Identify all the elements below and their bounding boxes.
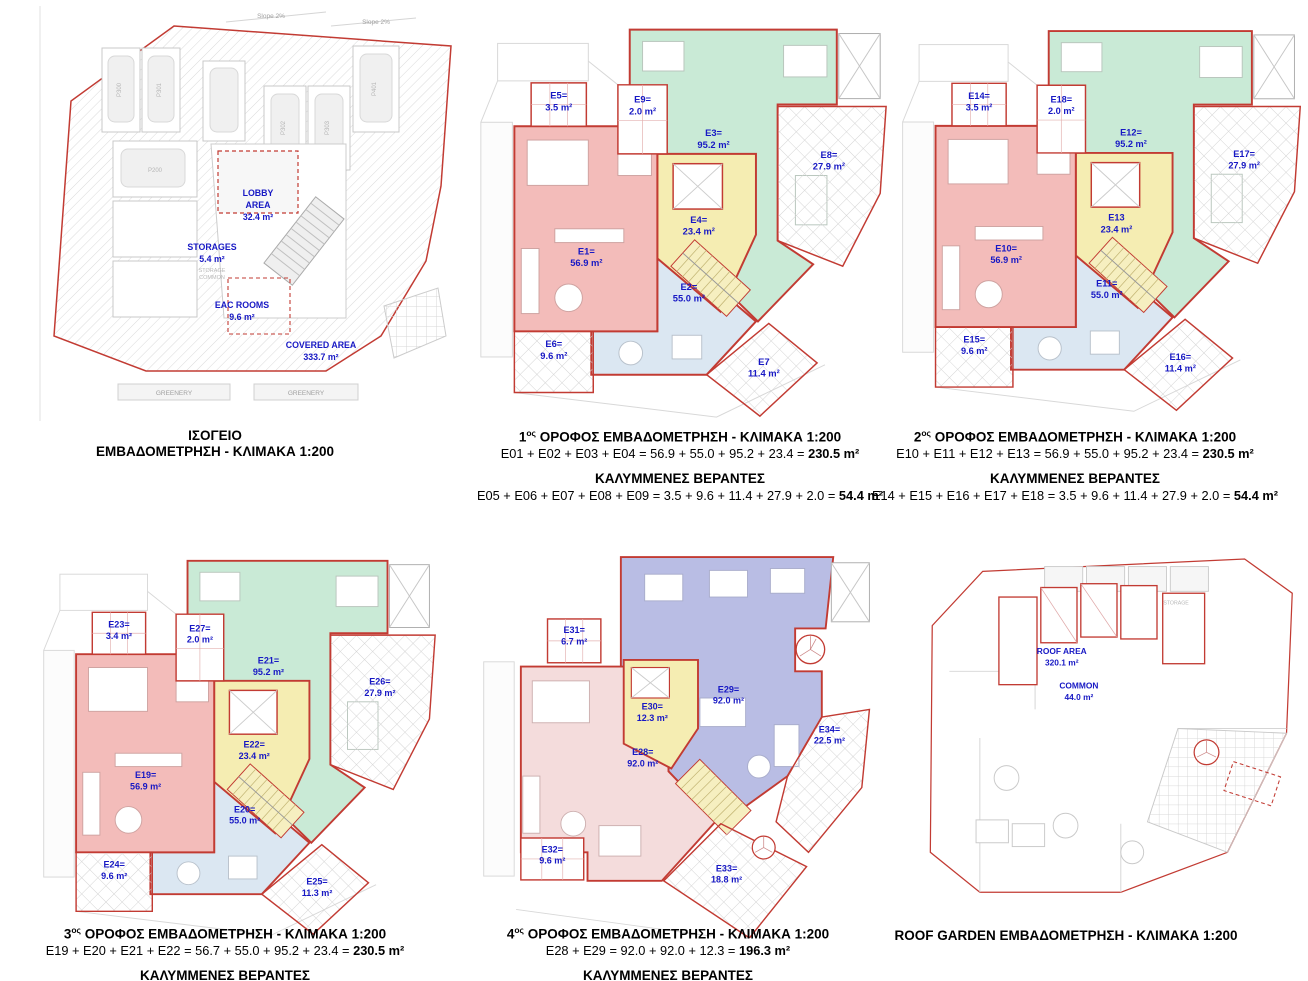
unit-label-e14: E14=3.5 m² bbox=[966, 91, 993, 113]
parking-label-p301: P301 bbox=[157, 82, 163, 97]
floor-3-area-sum: E19 + E20 + E21 + E22 = 56.7 + 55.0 + 95… bbox=[25, 943, 425, 959]
elevator-shaft bbox=[831, 563, 869, 622]
label-storage-common: STORAGECOMMON bbox=[199, 268, 226, 281]
roof-garden-title: ROOF GARDEN ΕΜΒΑΔΟΜΕΤΡΗΣΗ - ΚΛΙΜΑΚΑ 1:20… bbox=[866, 928, 1266, 944]
label-lobby: LOBBYAREA32.4 m² bbox=[243, 188, 274, 222]
unit-label-e24: E24=9.6 m² bbox=[101, 860, 127, 881]
unit-label-e32: E32=9.6 m² bbox=[539, 844, 565, 865]
floor-2-area-sum: E10 + E11 + E12 + E13 = 56.9 + 55.0 + 95… bbox=[865, 446, 1285, 462]
roof-garden-plan: ROOF AREA320.1 m² COMMON44.0 m² STORAGE bbox=[888, 538, 1306, 938]
floor-4-area-sum: E28 + E29 = 92.0 + 92.0 + 12.3 = 196.3 m… bbox=[468, 943, 868, 959]
label-storage: STORAGE bbox=[1163, 601, 1189, 607]
spiral-stair-top bbox=[796, 635, 825, 664]
floor-1-plan: E1=56.9 m² E2=55.0 m² E3=95.2 m² E4=23.4… bbox=[470, 5, 894, 421]
caption-roof-garden: ROOF GARDEN ΕΜΒΑΔΟΜΕΤΡΗΣΗ - ΚΛΙΜΑΚΑ 1:20… bbox=[866, 928, 1266, 944]
ground-title-line1: ΙΣΟΓΕΙΟ bbox=[25, 428, 405, 444]
label-greenery-a: GREENERY bbox=[156, 390, 193, 397]
floor-1-title: 1ος ΟΡΟΦΟΣ ΕΜΒΑΔΟΜΕΤΡΗΣΗ - ΚΛΙΜΑΚΑ 1:200 bbox=[470, 428, 890, 445]
elevator-shaft bbox=[839, 34, 880, 99]
ground-title-line2: ΕΜΒΑΔΟΜΕΤΡΗΣΗ - ΚΛΙΜΑΚΑ 1:200 bbox=[25, 444, 405, 460]
label-greenery-b: GREENERY bbox=[288, 390, 325, 397]
caption-floor-1: 1ος ΟΡΟΦΟΣ ΕΜΒΑΔΟΜΕΤΡΗΣΗ - ΚΛΙΜΑΚΑ 1:200… bbox=[470, 428, 890, 504]
parking-label-p401: P401 bbox=[372, 81, 378, 96]
floor-3-plan: E19=56.9 m² E20=55.0 m² E21=95.2 m² E22=… bbox=[28, 538, 448, 938]
label-slope-b: Slope 2% bbox=[362, 19, 390, 26]
label-slope-a: Slope 2% bbox=[257, 13, 285, 20]
parking-label-p200: P200 bbox=[148, 168, 163, 174]
floor-3-title: 3ος ΟΡΟΦΟΣ ΕΜΒΑΔΟΜΕΤΡΗΣΗ - ΚΛΙΜΑΚΑ 1:200 bbox=[25, 925, 425, 942]
floor-4-verandas-title: ΚΑΛΥΜΜΕΝΕΣ ΒΕΡΑΝΤΕΣ bbox=[468, 968, 868, 981]
terrace-e8 bbox=[778, 107, 886, 267]
unit-label-e27: E27=2.0 m² bbox=[187, 623, 213, 644]
elevator-shaft bbox=[1254, 35, 1295, 99]
floor-2-verandas-title: ΚΑΛΥΜΜΕΝΕΣ ΒΕΡΑΝΤΕΣ bbox=[865, 471, 1285, 487]
parking-label-p300: P300 bbox=[117, 82, 123, 97]
caption-floor-3: 3ος ΟΡΟΦΟΣ ΕΜΒΑΔΟΜΕΤΡΗΣΗ - ΚΛΙΜΑΚΑ 1:200… bbox=[25, 925, 425, 981]
unit-label-e23: E23=3.4 m² bbox=[106, 620, 132, 641]
caption-floor-2: 2ος ΟΡΟΦΟΣ ΕΜΒΑΔΟΜΕΤΡΗΣΗ - ΚΛΙΜΑΚΑ 1:200… bbox=[865, 428, 1285, 504]
unit-label-e18: E18=2.0 m² bbox=[1048, 95, 1075, 117]
elevator-shaft bbox=[389, 565, 429, 628]
caption-floor-4: 4ος ΟΡΟΦΟΣ ΕΜΒΑΔΟΜΕΤΡΗΣΗ - ΚΛΙΜΑΚΑ 1:200… bbox=[468, 925, 868, 981]
caption-ground-floor: ΙΣΟΓΕΙΟ ΕΜΒΑΔΟΜΕΤΡΗΣΗ - ΚΛΙΜΑΚΑ 1:200 bbox=[25, 428, 405, 460]
floor-4-title: 4ος ΟΡΟΦΟΣ ΕΜΒΑΔΟΜΕΤΡΗΣΗ - ΚΛΙΜΑΚΑ 1:200 bbox=[468, 925, 868, 942]
terrace-e17 bbox=[1194, 107, 1300, 264]
floor-3-verandas-title: ΚΑΛΥΜΜΕΝΕΣ ΒΕΡΑΝΤΕΣ bbox=[25, 968, 425, 981]
floor-4-plan: E28=92.0 m² E29=92.0 m² E30=12.3 m² E31=… bbox=[468, 538, 888, 938]
floor-1-verandas-title: ΚΑΛΥΜΜΕΝΕΣ ΒΕΡΑΝΤΕΣ bbox=[470, 471, 890, 487]
floor-1-area-sum: E01 + E02 + E03 + E04 = 56.9 + 55.0 + 95… bbox=[470, 446, 890, 462]
unit-label-e15: E15=9.6 m² bbox=[961, 335, 988, 357]
roof-spiral-stair bbox=[1194, 740, 1219, 765]
spiral-stair-bottom bbox=[752, 836, 775, 859]
parking-label-p302: P302 bbox=[281, 120, 287, 135]
ground-floor-plan: P300 P301 P302 P303 P401 P200 LOBBYAREA3… bbox=[25, 6, 457, 426]
label-common: COMMON44.0 m² bbox=[1059, 680, 1098, 701]
terrace-e26 bbox=[330, 635, 435, 789]
floor-1-verandas-sum: E05 + E06 + E07 + E08 + E09 = 3.5 + 9.6 … bbox=[470, 488, 890, 504]
floor-2-plan: E10=56.9 m² E11=55.0 m² E12=95.2 m² E132… bbox=[892, 5, 1308, 417]
parking-label-p303: P303 bbox=[325, 120, 331, 135]
floor-2-verandas-sum: E14 + E15 + E16 + E17 + E18 = 3.5 + 9.6 … bbox=[865, 488, 1285, 504]
floor-2-title: 2ος ΟΡΟΦΟΣ ΕΜΒΑΔΟΜΕΤΡΗΣΗ - ΚΛΙΜΑΚΑ 1:200 bbox=[865, 428, 1285, 445]
unit-label-e31: E31=6.7 m² bbox=[561, 625, 587, 646]
